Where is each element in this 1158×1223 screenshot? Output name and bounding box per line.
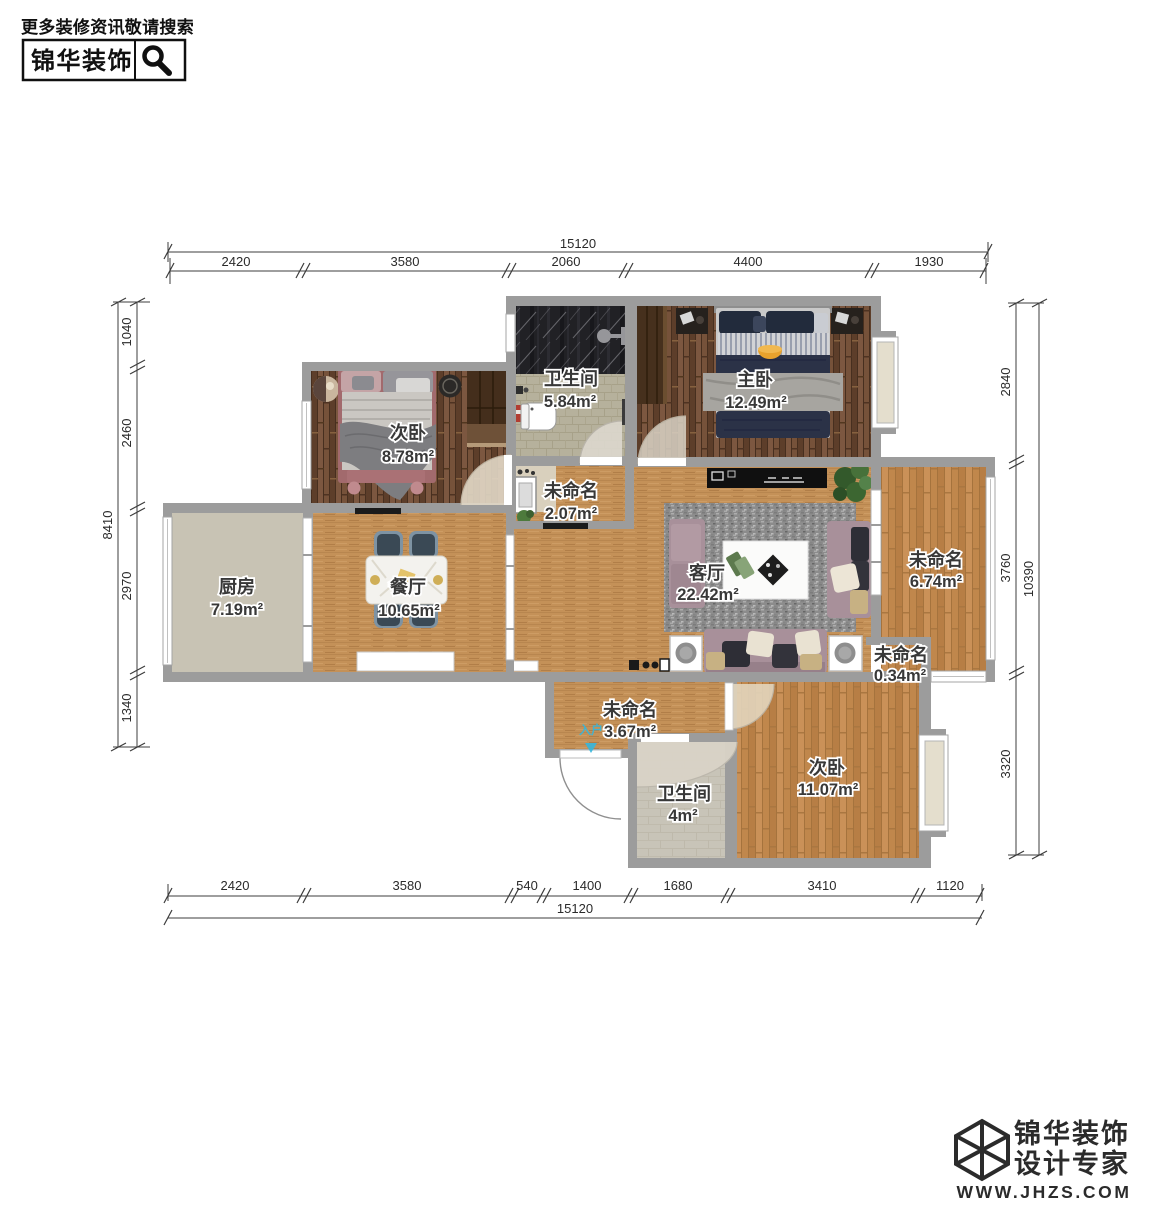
svg-text:2970: 2970 (119, 572, 134, 601)
svg-text:次卧: 次卧 (390, 422, 426, 443)
svg-text:1120: 1120 (936, 878, 964, 893)
svg-text:2420: 2420 (221, 878, 250, 893)
svg-text:2460: 2460 (119, 419, 134, 448)
svg-text:2060: 2060 (552, 254, 581, 269)
svg-text:3410: 3410 (808, 878, 837, 893)
svg-text:2420: 2420 (222, 254, 251, 269)
svg-text:次卧: 次卧 (809, 757, 845, 778)
svg-text:8410: 8410 (100, 511, 115, 540)
svg-text:2840: 2840 (998, 368, 1013, 397)
svg-text:客厅: 客厅 (689, 562, 725, 583)
svg-text:卫生间: 卫生间 (657, 783, 711, 804)
svg-text:7.19m²: 7.19m² (211, 601, 264, 619)
svg-text:1680: 1680 (664, 878, 693, 893)
svg-text:未命名: 未命名 (909, 549, 963, 570)
svg-text:餐厅: 餐厅 (389, 576, 426, 597)
svg-text:5.84m²: 5.84m² (544, 393, 597, 411)
svg-text:10.65m²: 10.65m² (378, 602, 440, 620)
svg-text:540: 540 (516, 878, 538, 893)
svg-text:6.74m²: 6.74m² (910, 573, 963, 591)
svg-text:锦华装饰: 锦华装饰 (31, 47, 133, 75)
svg-text:锦华装饰: 锦华装饰 (1014, 1118, 1130, 1149)
svg-text:1930: 1930 (915, 254, 944, 269)
svg-text:3580: 3580 (393, 878, 422, 893)
svg-text:11.07m²: 11.07m² (798, 781, 859, 799)
svg-text:15120: 15120 (560, 236, 596, 251)
svg-text:3320: 3320 (998, 750, 1013, 779)
svg-text:未命名: 未命名 (874, 644, 928, 665)
svg-text:更多装修资讯敬请搜索: 更多装修资讯敬请搜索 (21, 17, 194, 37)
svg-text:22.42m²: 22.42m² (677, 586, 739, 604)
svg-text:厨房: 厨房 (219, 576, 255, 597)
svg-text:3.67m²: 3.67m² (604, 723, 657, 741)
svg-text:4400: 4400 (734, 254, 763, 269)
svg-text:12.49m²: 12.49m² (725, 394, 787, 412)
svg-text:1400: 1400 (573, 878, 602, 893)
svg-text:4m²: 4m² (668, 807, 698, 825)
svg-text:3760: 3760 (998, 554, 1013, 583)
svg-text:入户: 入户 (579, 722, 603, 737)
svg-text:3580: 3580 (391, 254, 420, 269)
svg-text:主卧: 主卧 (737, 369, 773, 390)
svg-text:0.34m²: 0.34m² (874, 667, 927, 685)
svg-text:15120: 15120 (557, 901, 593, 916)
svg-text:10390: 10390 (1021, 561, 1036, 597)
svg-text:2.07m²: 2.07m² (545, 505, 598, 523)
svg-text:WWW.JHZS.COM: WWW.JHZS.COM (956, 1182, 1131, 1202)
svg-text:8.78m²: 8.78m² (382, 448, 435, 466)
svg-text:设计专家: 设计专家 (1014, 1148, 1130, 1179)
svg-text:卫生间: 卫生间 (544, 368, 598, 389)
svg-text:1040: 1040 (119, 318, 134, 347)
svg-text:1340: 1340 (119, 694, 134, 723)
svg-text:未命名: 未命名 (544, 480, 598, 501)
svg-text:未命名: 未命名 (603, 699, 657, 720)
